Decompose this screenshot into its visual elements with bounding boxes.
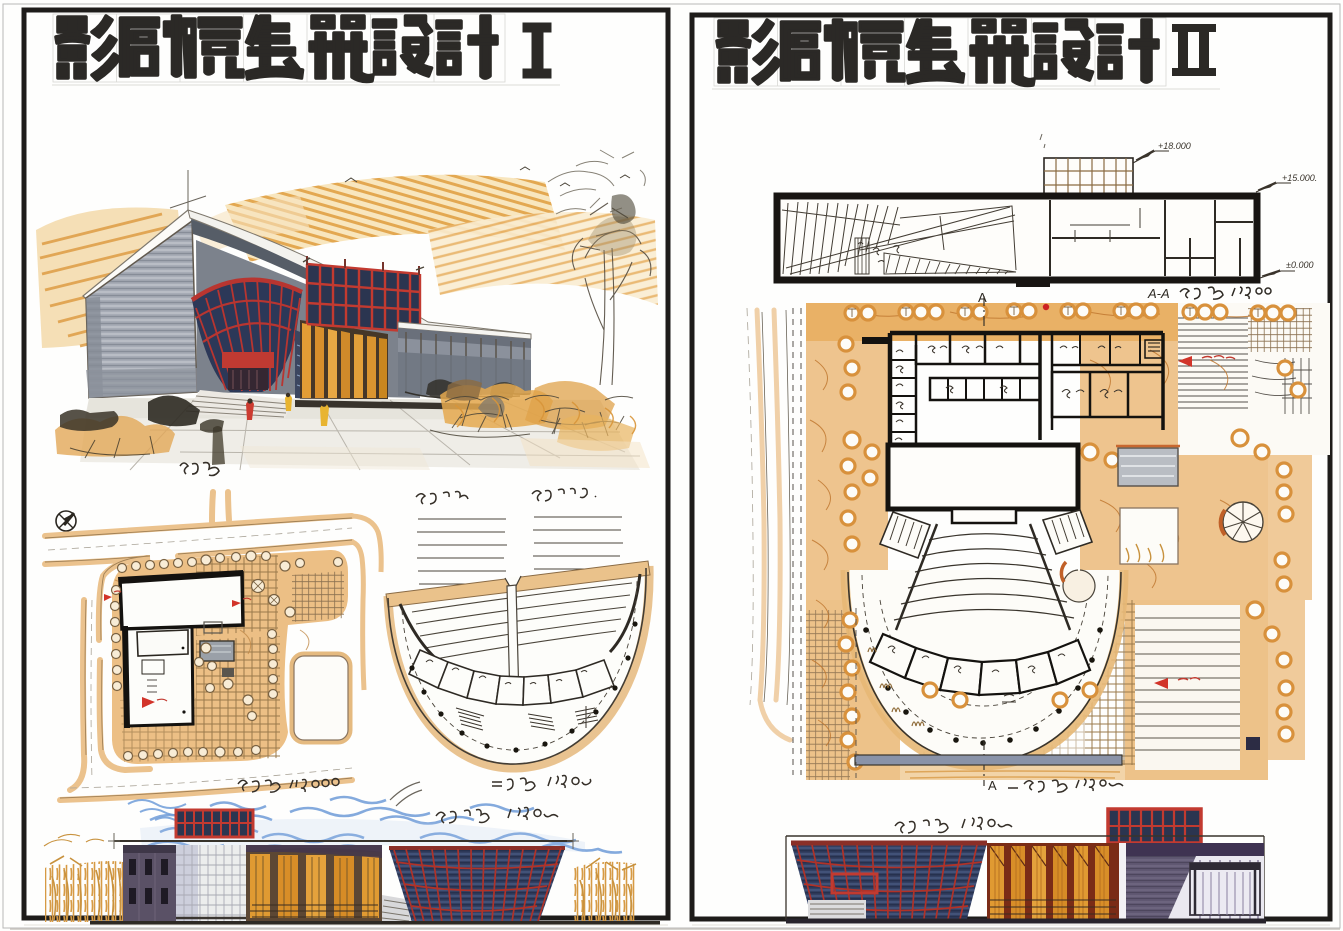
svg-text:A: A — [978, 290, 987, 305]
svg-text:±0.000: ±0.000 — [1286, 260, 1313, 270]
svg-text:+15.000.: +15.000. — [1282, 173, 1317, 183]
svg-text:A-A: A-A — [1147, 286, 1170, 301]
svg-text:A: A — [988, 778, 997, 793]
svg-text:+18.000: +18.000 — [1158, 141, 1191, 151]
